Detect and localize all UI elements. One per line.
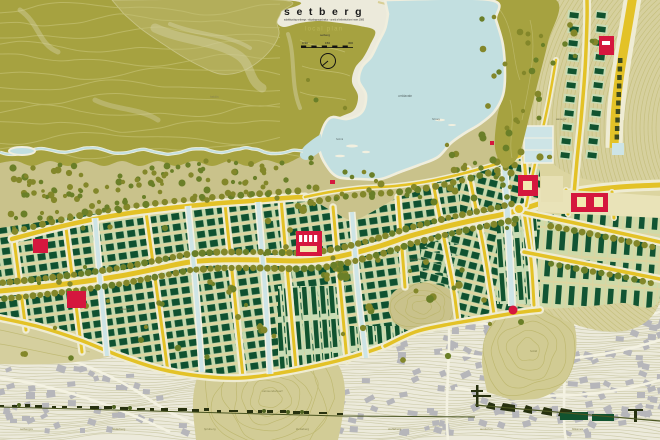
svg-text:0 50: 0 50: [302, 41, 308, 45]
svg-text:holmi: holmi: [336, 137, 344, 141]
svg-text:setbergsv: setbergsv: [20, 427, 34, 431]
svg-text:urridavatn: urridavatn: [398, 94, 412, 98]
svg-text:alfaskeid: alfaskeid: [120, 307, 132, 311]
svg-text:blikanes: blikanes: [572, 427, 584, 431]
svg-text:heidin: heidin: [210, 95, 219, 99]
svg-text:vatnsendahvarf: vatnsendahvarf: [262, 389, 283, 393]
svg-text:adalskipulag setbergs - skip: adalskipulag setbergs - skipulagsuppdrat…: [284, 19, 365, 22]
svg-text:klettaberg: klettaberg: [296, 427, 310, 431]
svg-text:hrisey: hrisey: [432, 117, 441, 121]
svg-text:setberg: setberg: [284, 6, 368, 18]
svg-text:local plan: local plan: [305, 27, 343, 33]
svg-text:fjoluberg: fjoluberg: [204, 427, 216, 431]
svg-text:holtid: holtid: [530, 349, 538, 353]
svg-text:setberg: setberg: [320, 33, 330, 37]
svg-text:150: 150: [325, 41, 330, 45]
svg-text:hlidarberg: hlidarberg: [112, 427, 126, 431]
svg-text:skogarvegur: skogarvegur: [410, 257, 427, 261]
svg-text:asvegur: asvegur: [556, 117, 567, 121]
svg-text:austurtun: austurtun: [480, 427, 493, 431]
svg-text:stuflaberg: stuflaberg: [388, 427, 402, 431]
svg-text:300: 300: [348, 41, 353, 45]
